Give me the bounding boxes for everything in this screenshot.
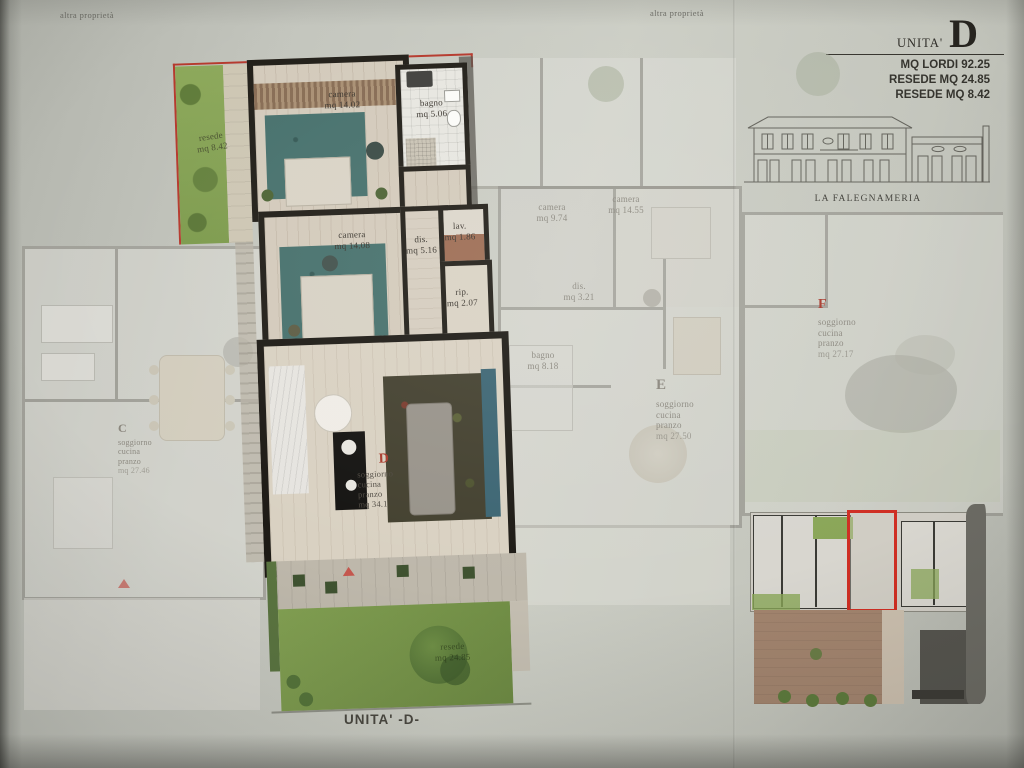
siteplan-green-left [752,594,800,610]
siteplan-green-patch-2 [911,569,939,599]
unita-d-footer-label: UNITA' -D- [292,712,472,727]
siteplan-tree [778,690,791,703]
side-table [366,141,385,160]
plant [375,187,387,199]
siteplan-tree [864,694,877,707]
plant [261,189,273,201]
planter [463,566,475,578]
siteplan-tree [810,648,822,660]
planter [293,574,305,586]
room-label-camera-top: cameramq 14.02 [312,88,373,111]
siteplan-path [882,610,904,704]
floor-plan-sheet-photo: altra proprietà altra proprietà UNITA' D… [0,0,1024,768]
siteplan-caption-bar [912,690,964,699]
bed-top [284,157,352,207]
paver-column [510,601,530,672]
siteplan-right-strip [966,504,986,704]
bush [286,675,300,689]
marble-cabinet [268,365,308,494]
planter [325,581,337,593]
garden: resedemq 24.85 [266,553,531,714]
hob [345,480,356,491]
pavers [276,553,528,610]
sink-bowl [341,440,357,456]
planter [396,565,408,577]
resede-strip [175,65,229,245]
room-label-lav: lav.mq 1.86 [441,220,480,243]
entrance-marker-d [343,567,355,576]
bed-mid [300,274,374,340]
round-table [313,394,352,433]
siteplan-courtyard [754,610,902,704]
paper-crease [733,0,736,768]
shower [406,138,437,169]
siteplan-unit-d-outline [847,510,897,612]
room-label-rip: rip.mq 2.07 [441,286,484,309]
washing-machine [406,71,433,88]
siteplan-tree [806,694,819,707]
room-label-bagno: bagnomq 5.06 [406,97,457,120]
room-label-resede-garden: resedemq 24.85 [417,640,488,664]
bush [299,692,313,706]
site-key-plan [744,498,990,714]
room-label-dis: dis.mq 5.16 [401,233,442,256]
room-camera-top [247,54,415,222]
room-label-camera-mid: cameramq 14.08 [322,228,383,251]
room-label-living: D soggiorno cucina pranzo mq 34.1 [357,450,417,509]
siteplan-tree [836,692,849,705]
